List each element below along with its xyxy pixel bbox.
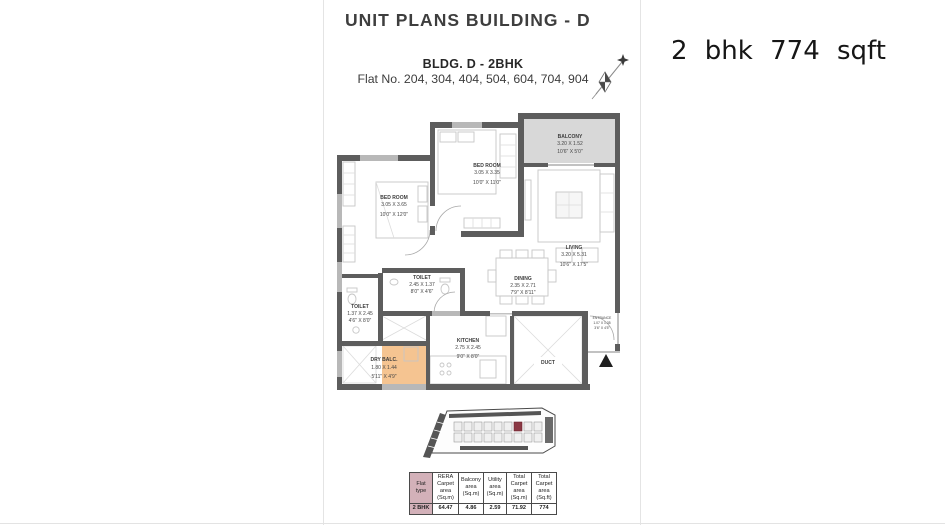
panel-divider-right	[640, 0, 641, 525]
area-table-header-row: Flat type RERA Carpet area (Sq.m) Balcon…	[410, 473, 557, 504]
floor-plan: BALCONY 3.20 X 1.52 10'6" X 5'0" BED ROO…	[334, 108, 626, 400]
svg-text:2.75 X 2.45: 2.75 X 2.45	[455, 345, 481, 351]
room-label-bedroom-top: BED ROOM	[473, 163, 501, 169]
col-total-sqft: Total Carpet area (Sq.ft)	[532, 473, 557, 504]
svg-text:9'0" X 8'0": 9'0" X 8'0"	[457, 354, 480, 360]
col-utility-area: Utility area (Sq.m)	[484, 473, 507, 504]
cell-balcony-area: 4.86	[459, 503, 484, 514]
svg-text:4'6" X 8'0": 4'6" X 8'0"	[349, 318, 372, 324]
room-label-balcony: BALCONY	[558, 134, 583, 140]
room-label-toilet-left: TOILET	[351, 304, 369, 310]
cell-total-sqft: 774	[532, 503, 557, 514]
svg-text:1.37 X 2.45: 1.37 X 2.45	[347, 311, 373, 317]
room-label-bedroom-left: BED ROOM	[380, 195, 408, 201]
cell-flat-type: 2 BHK	[410, 503, 433, 514]
door-arc	[436, 206, 461, 231]
room-label-kitchen: KITCHEN	[457, 338, 480, 344]
door-arc	[434, 292, 455, 313]
bedroom-top-furniture	[438, 130, 516, 228]
svg-text:10'0" X 11'0": 10'0" X 11'0"	[473, 180, 501, 186]
room-label-entrance: ENTRANCE	[593, 316, 612, 320]
svg-text:2.45 X 1.37: 2.45 X 1.37	[409, 282, 435, 288]
passage-tiles	[382, 316, 426, 340]
area-table-data-row: 2 BHK 64.47 4.86 2.59 71.92 774	[410, 503, 557, 514]
svg-text:3.05 X 3.65: 3.05 X 3.65	[381, 202, 407, 208]
room-label-duct: DUCT	[541, 360, 555, 366]
svg-text:3.05 X 3.35: 3.05 X 3.35	[474, 170, 500, 176]
plan-flat-numbers: Flat No. 204, 304, 404, 504, 604, 704, 9…	[323, 72, 623, 86]
highlighted-unit	[514, 422, 522, 431]
svg-text:3.20 X 5.31: 3.20 X 5.31	[561, 252, 587, 258]
room-label-toilet-top: TOILET	[413, 275, 431, 281]
col-flat-type: Flat type	[410, 473, 433, 504]
entrance-arrow-icon	[599, 354, 613, 367]
col-rera-carpet: RERA Carpet area (Sq.m)	[433, 473, 459, 504]
door-arc	[405, 230, 430, 255]
svg-text:5'11" X 4'9": 5'11" X 4'9"	[371, 374, 396, 380]
svg-text:3.20 X 1.52: 3.20 X 1.52	[557, 141, 583, 147]
cell-utility-area: 2.59	[484, 503, 507, 514]
svg-text:1.07 X 1.35: 1.07 X 1.35	[593, 321, 610, 325]
room-label-dry-balcony: DRY BALC.	[371, 357, 399, 363]
cell-rera-carpet: 64.47	[433, 503, 459, 514]
plan-subtitle: BLDG. D - 2BHK	[323, 57, 623, 71]
svg-text:3'6" X 4'5": 3'6" X 4'5"	[594, 326, 610, 330]
cell-total-sqm: 71.92	[507, 503, 532, 514]
svg-text:10'6" X 5'0": 10'6" X 5'0"	[557, 149, 583, 155]
duct-shaft	[514, 316, 582, 384]
svg-text:7'9" X 8'11": 7'9" X 8'11"	[510, 290, 535, 296]
room-label-dining: DINING	[514, 276, 532, 282]
compass-north-icon	[590, 52, 630, 100]
col-balcony-area: Balcony area (Sq.m)	[459, 473, 484, 504]
plan-header: BLDG. D - 2BHK Flat No. 204, 304, 404, 5…	[323, 57, 623, 86]
building-key-plan	[420, 402, 560, 464]
page-title: UNIT PLANS BUILDING - D	[345, 10, 591, 31]
svg-text:1.80 X 1.44: 1.80 X 1.44	[371, 365, 397, 371]
room-label-living: LIVING	[566, 245, 583, 251]
page-bottom-edge	[0, 523, 945, 524]
annotation-text: 2 bhk 774 sqft	[671, 36, 886, 66]
svg-text:8'0" X 4'6": 8'0" X 4'6"	[411, 289, 434, 295]
svg-text:10'0" X 12'0": 10'0" X 12'0"	[380, 212, 408, 218]
col-total-sqm: Total Carpet area (Sq.m)	[507, 473, 532, 504]
svg-text:2.35 X 2.71: 2.35 X 2.71	[510, 283, 536, 289]
svg-text:10'6" X 17'5": 10'6" X 17'5"	[560, 262, 588, 268]
area-table: Flat type RERA Carpet area (Sq.m) Balcon…	[409, 472, 557, 515]
page: UNIT PLANS BUILDING - D BLDG. D - 2BHK F…	[0, 0, 945, 525]
